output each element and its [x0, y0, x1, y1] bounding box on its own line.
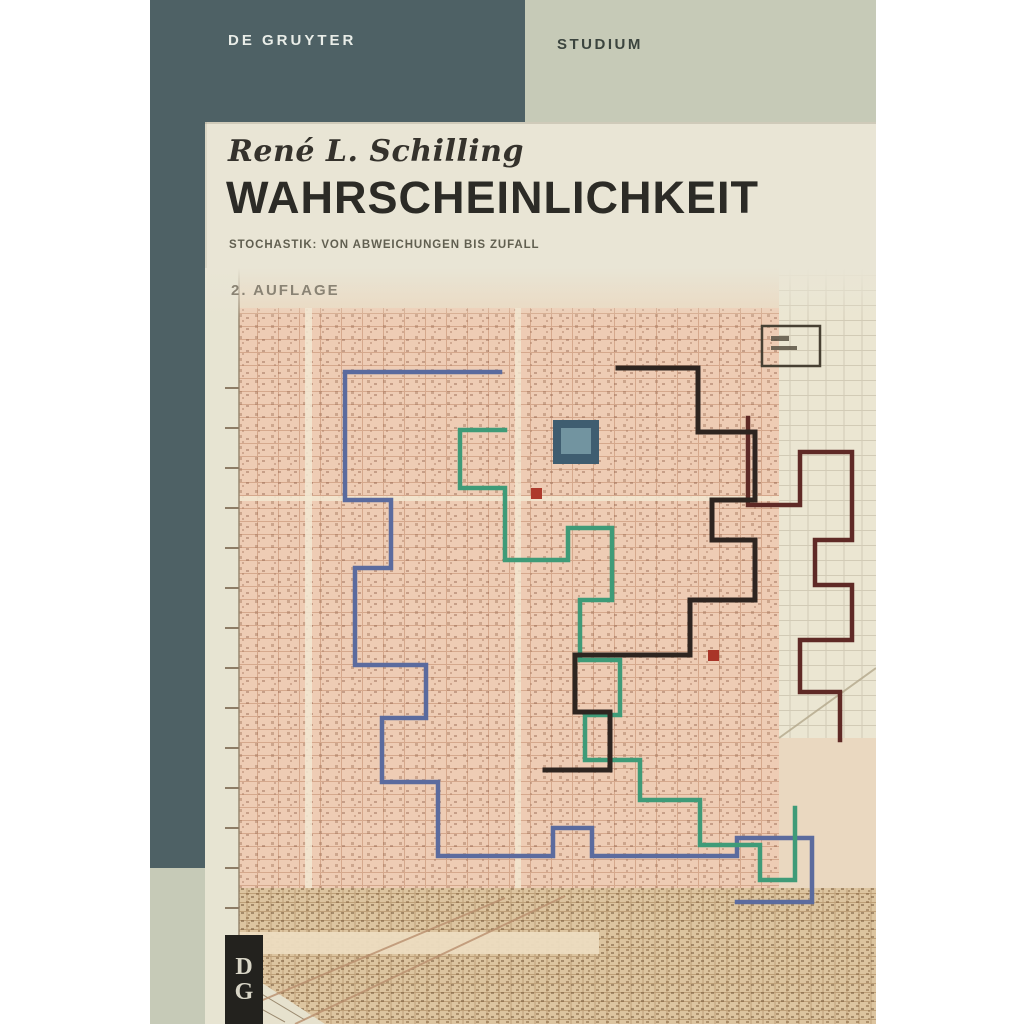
book-cover: René L. Schilling WAHRSCHEINLICHKEIT STO…: [205, 122, 876, 1024]
book-subtitle: STOCHASTIK: VON ABWEICHUNGEN BIS ZUFALL: [229, 239, 539, 251]
de-gruyter-logo: D G: [225, 935, 263, 1024]
city-map-svg: [205, 268, 876, 1024]
logo-letter-d: D: [235, 956, 252, 979]
series-name: STUDIUM: [557, 36, 643, 53]
edition-label: 2. AUFLAGE: [231, 282, 340, 299]
book-cover-product-image: DE GRUYTER STUDIUM René L. Schilling WAH…: [0, 0, 1024, 1024]
logo-letter-g: G: [235, 981, 254, 1004]
map-highlight-square: [553, 420, 599, 464]
publisher-name: DE GRUYTER: [228, 32, 356, 49]
red-marker-1: [531, 488, 542, 499]
author-name: René L. Schilling: [228, 134, 524, 169]
red-marker-2: [708, 650, 719, 661]
map-waterfront: [205, 268, 239, 1024]
map-illustration: 2. AUFLAGE: [205, 268, 876, 1024]
book-title: WAHRSCHEINLICHKEIT: [226, 172, 759, 224]
